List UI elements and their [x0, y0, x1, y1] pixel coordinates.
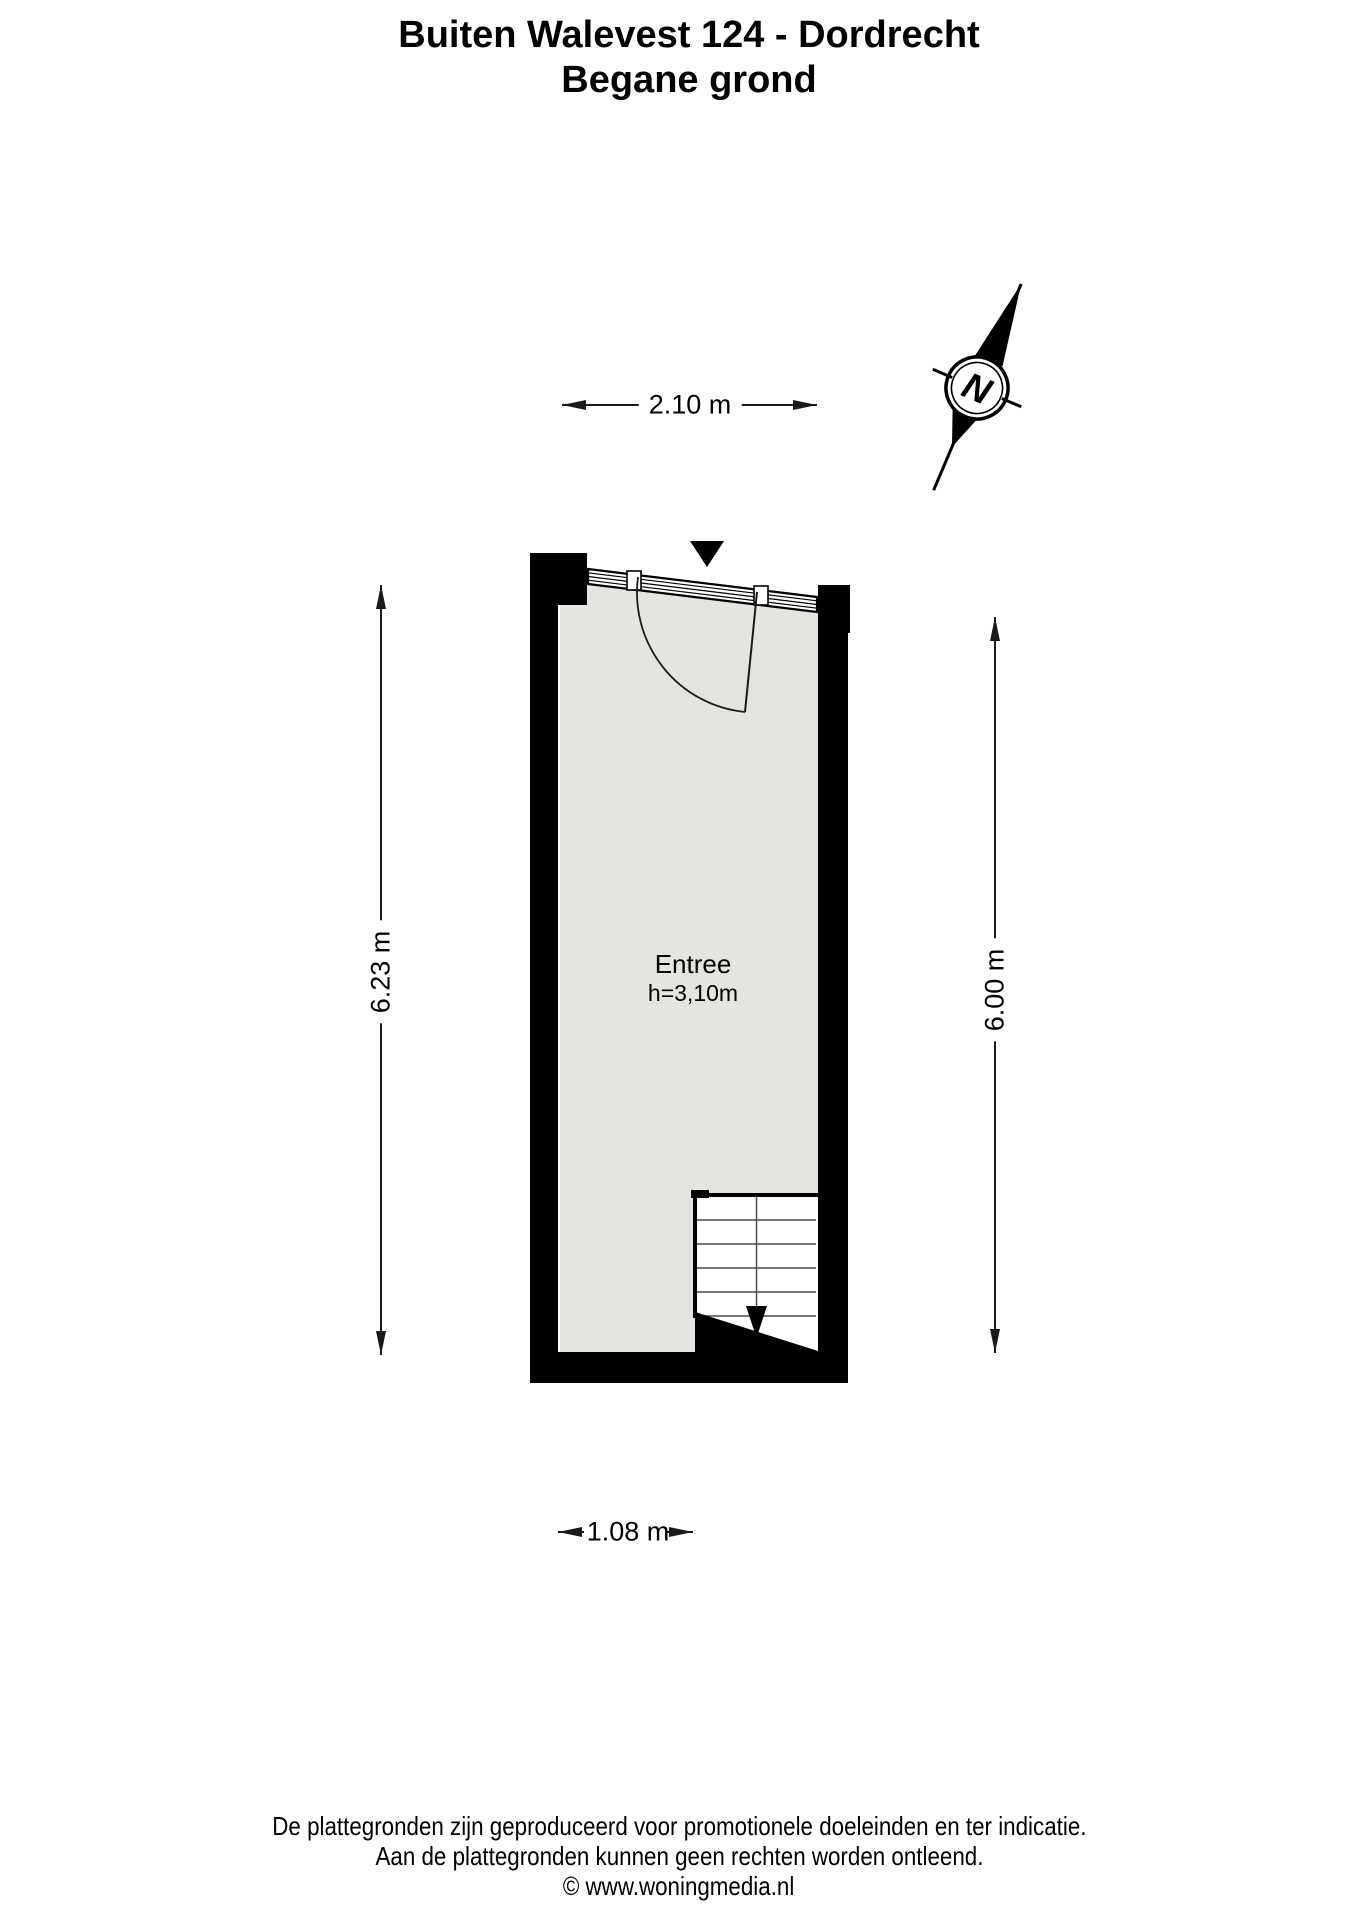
- copyright-line: © www.woningmedia.nl: [563, 1871, 794, 1901]
- footer-disclaimer: De plattegronden zijn geproduceerd voor …: [0, 1811, 1358, 1901]
- stair-left-border: [693, 1193, 697, 1318]
- staircase: [691, 1190, 818, 1353]
- room-ceiling-height: h=3,10m: [648, 979, 738, 1007]
- disclaimer-line-1: De plattegronden zijn geproduceerd voor …: [272, 1811, 1086, 1841]
- room-label: Entree h=3,10m: [648, 949, 738, 1007]
- dimension-label-right: 6.00 m: [980, 939, 1011, 1042]
- right-wall: [818, 585, 848, 1383]
- entrance-arrow-icon: [690, 541, 724, 567]
- left-top-pier: [530, 553, 587, 605]
- dimension-label-left: 6.23 m: [366, 921, 397, 1024]
- floorplan-page: Buiten Walevest 124 - Dordrecht Begane g…: [0, 0, 1358, 1920]
- bottom-wall: [530, 1352, 848, 1383]
- left-wall: [530, 553, 558, 1383]
- right-top-pier: [818, 585, 850, 633]
- dimension-label-bottom: 1.08 m: [583, 1517, 674, 1548]
- dimension-label-top: 2.10 m: [639, 390, 742, 421]
- window-post: [627, 571, 641, 590]
- stair-top-border: [693, 1193, 818, 1197]
- disclaimer-line-2: Aan de plattegronden kunnen geen rechten…: [375, 1841, 983, 1871]
- north-compass-icon: N: [889, 265, 1065, 509]
- room-name: Entree: [648, 949, 738, 979]
